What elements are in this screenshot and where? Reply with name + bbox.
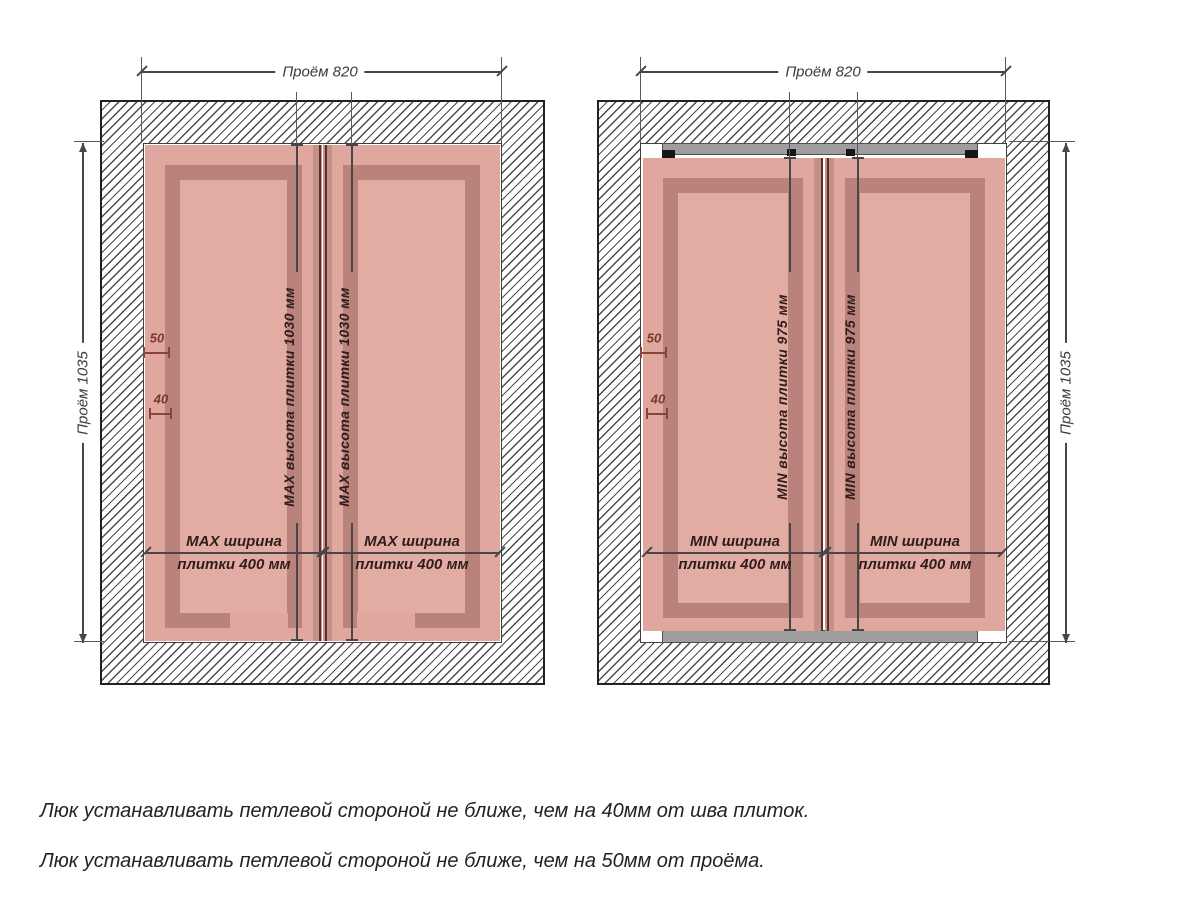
tile-width-label: MIN ширина плитки 400 мм	[858, 530, 971, 576]
offset-dimension-line	[144, 352, 169, 354]
dimension-line	[296, 523, 298, 641]
seam-offset-label: 40	[154, 392, 168, 407]
dimension-tick	[291, 639, 303, 641]
frame-notch	[230, 613, 288, 628]
extension-line	[351, 92, 352, 145]
offset-dimension-line	[641, 352, 666, 354]
seam-offset-label: 40	[651, 392, 665, 407]
seam-line	[827, 158, 829, 631]
dimension-tick	[852, 629, 864, 631]
offset-dimension-line	[647, 413, 667, 415]
offset-tick	[170, 408, 172, 419]
offset-tick	[143, 347, 145, 358]
arrowhead-up	[79, 143, 87, 152]
tile-width-line1: MIN ширина	[678, 530, 791, 553]
installation-note-2: Люк устанавливать петлевой стороной не б…	[40, 850, 765, 873]
offset-tick	[168, 347, 170, 358]
hinge-bracket	[846, 149, 855, 156]
dimension-tick	[346, 144, 358, 146]
tile-width-line1: MAX ширина	[355, 530, 468, 553]
frame-notch	[357, 613, 415, 628]
dimension-line	[296, 145, 298, 272]
seam-line	[325, 145, 327, 641]
extension-line	[296, 92, 297, 145]
dimension-line	[351, 145, 353, 272]
seam-line	[821, 158, 823, 631]
offset-tick	[666, 408, 668, 419]
offset-tick	[665, 347, 667, 358]
dimension-tick	[852, 157, 864, 159]
dimension-tick	[784, 157, 796, 159]
offset-tick	[646, 408, 648, 419]
tile-height-label: MAX высота плитки 1030 мм	[281, 287, 297, 506]
frame-bar-top	[662, 143, 978, 155]
tile-width-line1: MIN ширина	[858, 530, 971, 553]
arrowhead-down	[1062, 634, 1070, 643]
opening-width-label: Проём 820	[778, 63, 867, 82]
tile-height-label: MIN высота плитки 975 мм	[842, 294, 858, 500]
hinge-bracket	[965, 150, 978, 158]
dimension-tick	[784, 629, 796, 631]
offset-tick	[149, 408, 151, 419]
hinge-bracket	[662, 150, 675, 158]
dimension-line	[351, 523, 353, 641]
arrowhead-down	[79, 634, 87, 643]
extension-line	[74, 141, 104, 142]
offset-tick	[640, 347, 642, 358]
hinge-offset-label: 50	[150, 331, 164, 346]
opening-width-label: Проём 820	[275, 63, 364, 82]
extension-line	[789, 92, 790, 158]
tile-width-line1: MAX ширина	[177, 530, 290, 553]
tile-width-label: MIN ширина плитки 400 мм	[678, 530, 791, 576]
dimension-tick	[291, 144, 303, 146]
seam-line	[319, 145, 321, 641]
tile-width-line2: плитки 400 мм	[355, 553, 468, 576]
tile-width-line2: плитки 400 мм	[858, 553, 971, 576]
opening-height-label: Проём 1035	[1056, 343, 1077, 443]
dimension-line	[857, 158, 859, 272]
tile-width-label: MAX ширина плитки 400 мм	[177, 530, 290, 576]
dimension-tick	[346, 639, 358, 641]
tile-height-label: MAX высота плитки 1030 мм	[336, 287, 352, 506]
offset-dimension-line	[150, 413, 171, 415]
dimension-line	[789, 158, 791, 272]
tile-width-label: MAX ширина плитки 400 мм	[355, 530, 468, 576]
tile-width-line2: плитки 400 мм	[678, 553, 791, 576]
frame-bar-bottom	[662, 630, 978, 643]
tile-width-line2: плитки 400 мм	[177, 553, 290, 576]
tile-height-label: MIN высота плитки 975 мм	[774, 294, 790, 500]
extension-line	[1009, 141, 1075, 142]
installation-note-1: Люк устанавливать петлевой стороной не б…	[40, 800, 809, 823]
hinge-offset-label: 50	[647, 331, 661, 346]
opening-height-label: Проём 1035	[73, 343, 94, 443]
extension-line	[857, 92, 858, 158]
drawing-canvas: Проём 820 Проём 1035 MAX высота плитки 1…	[0, 0, 1200, 906]
arrowhead-up	[1062, 143, 1070, 152]
